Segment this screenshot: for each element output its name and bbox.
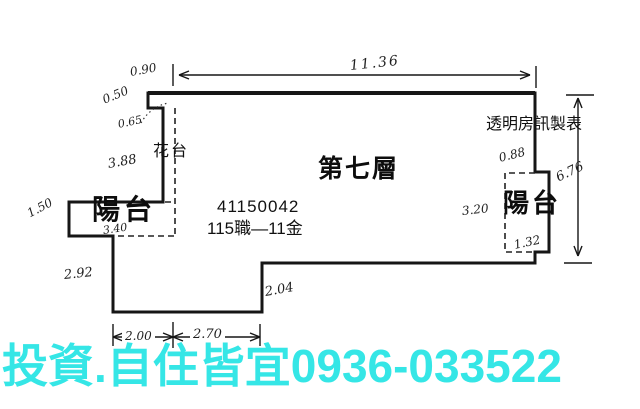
dim-right-balcony-height: 3.20 [461, 202, 489, 217]
balcony-left-label: 陽台 [92, 197, 156, 225]
flower-bed-label: 花台 [153, 144, 189, 160]
balcony-right-label: 陽台 [503, 191, 561, 217]
floor-label: 第七層 [318, 157, 399, 182]
ref-number: 41150042 [217, 198, 299, 215]
ref-code: 115職—11金 [207, 220, 303, 237]
maker-label: 透明房訊製表 [486, 117, 582, 133]
floorplan-page: 0.90 11.36 0.50 0.65 3.88 1.50 3.40 2.92… [0, 0, 640, 409]
dim-left-lower-height: 2.92 [63, 266, 93, 282]
banner-text: 投資.自住皆宜0936-033522 [2, 343, 640, 389]
